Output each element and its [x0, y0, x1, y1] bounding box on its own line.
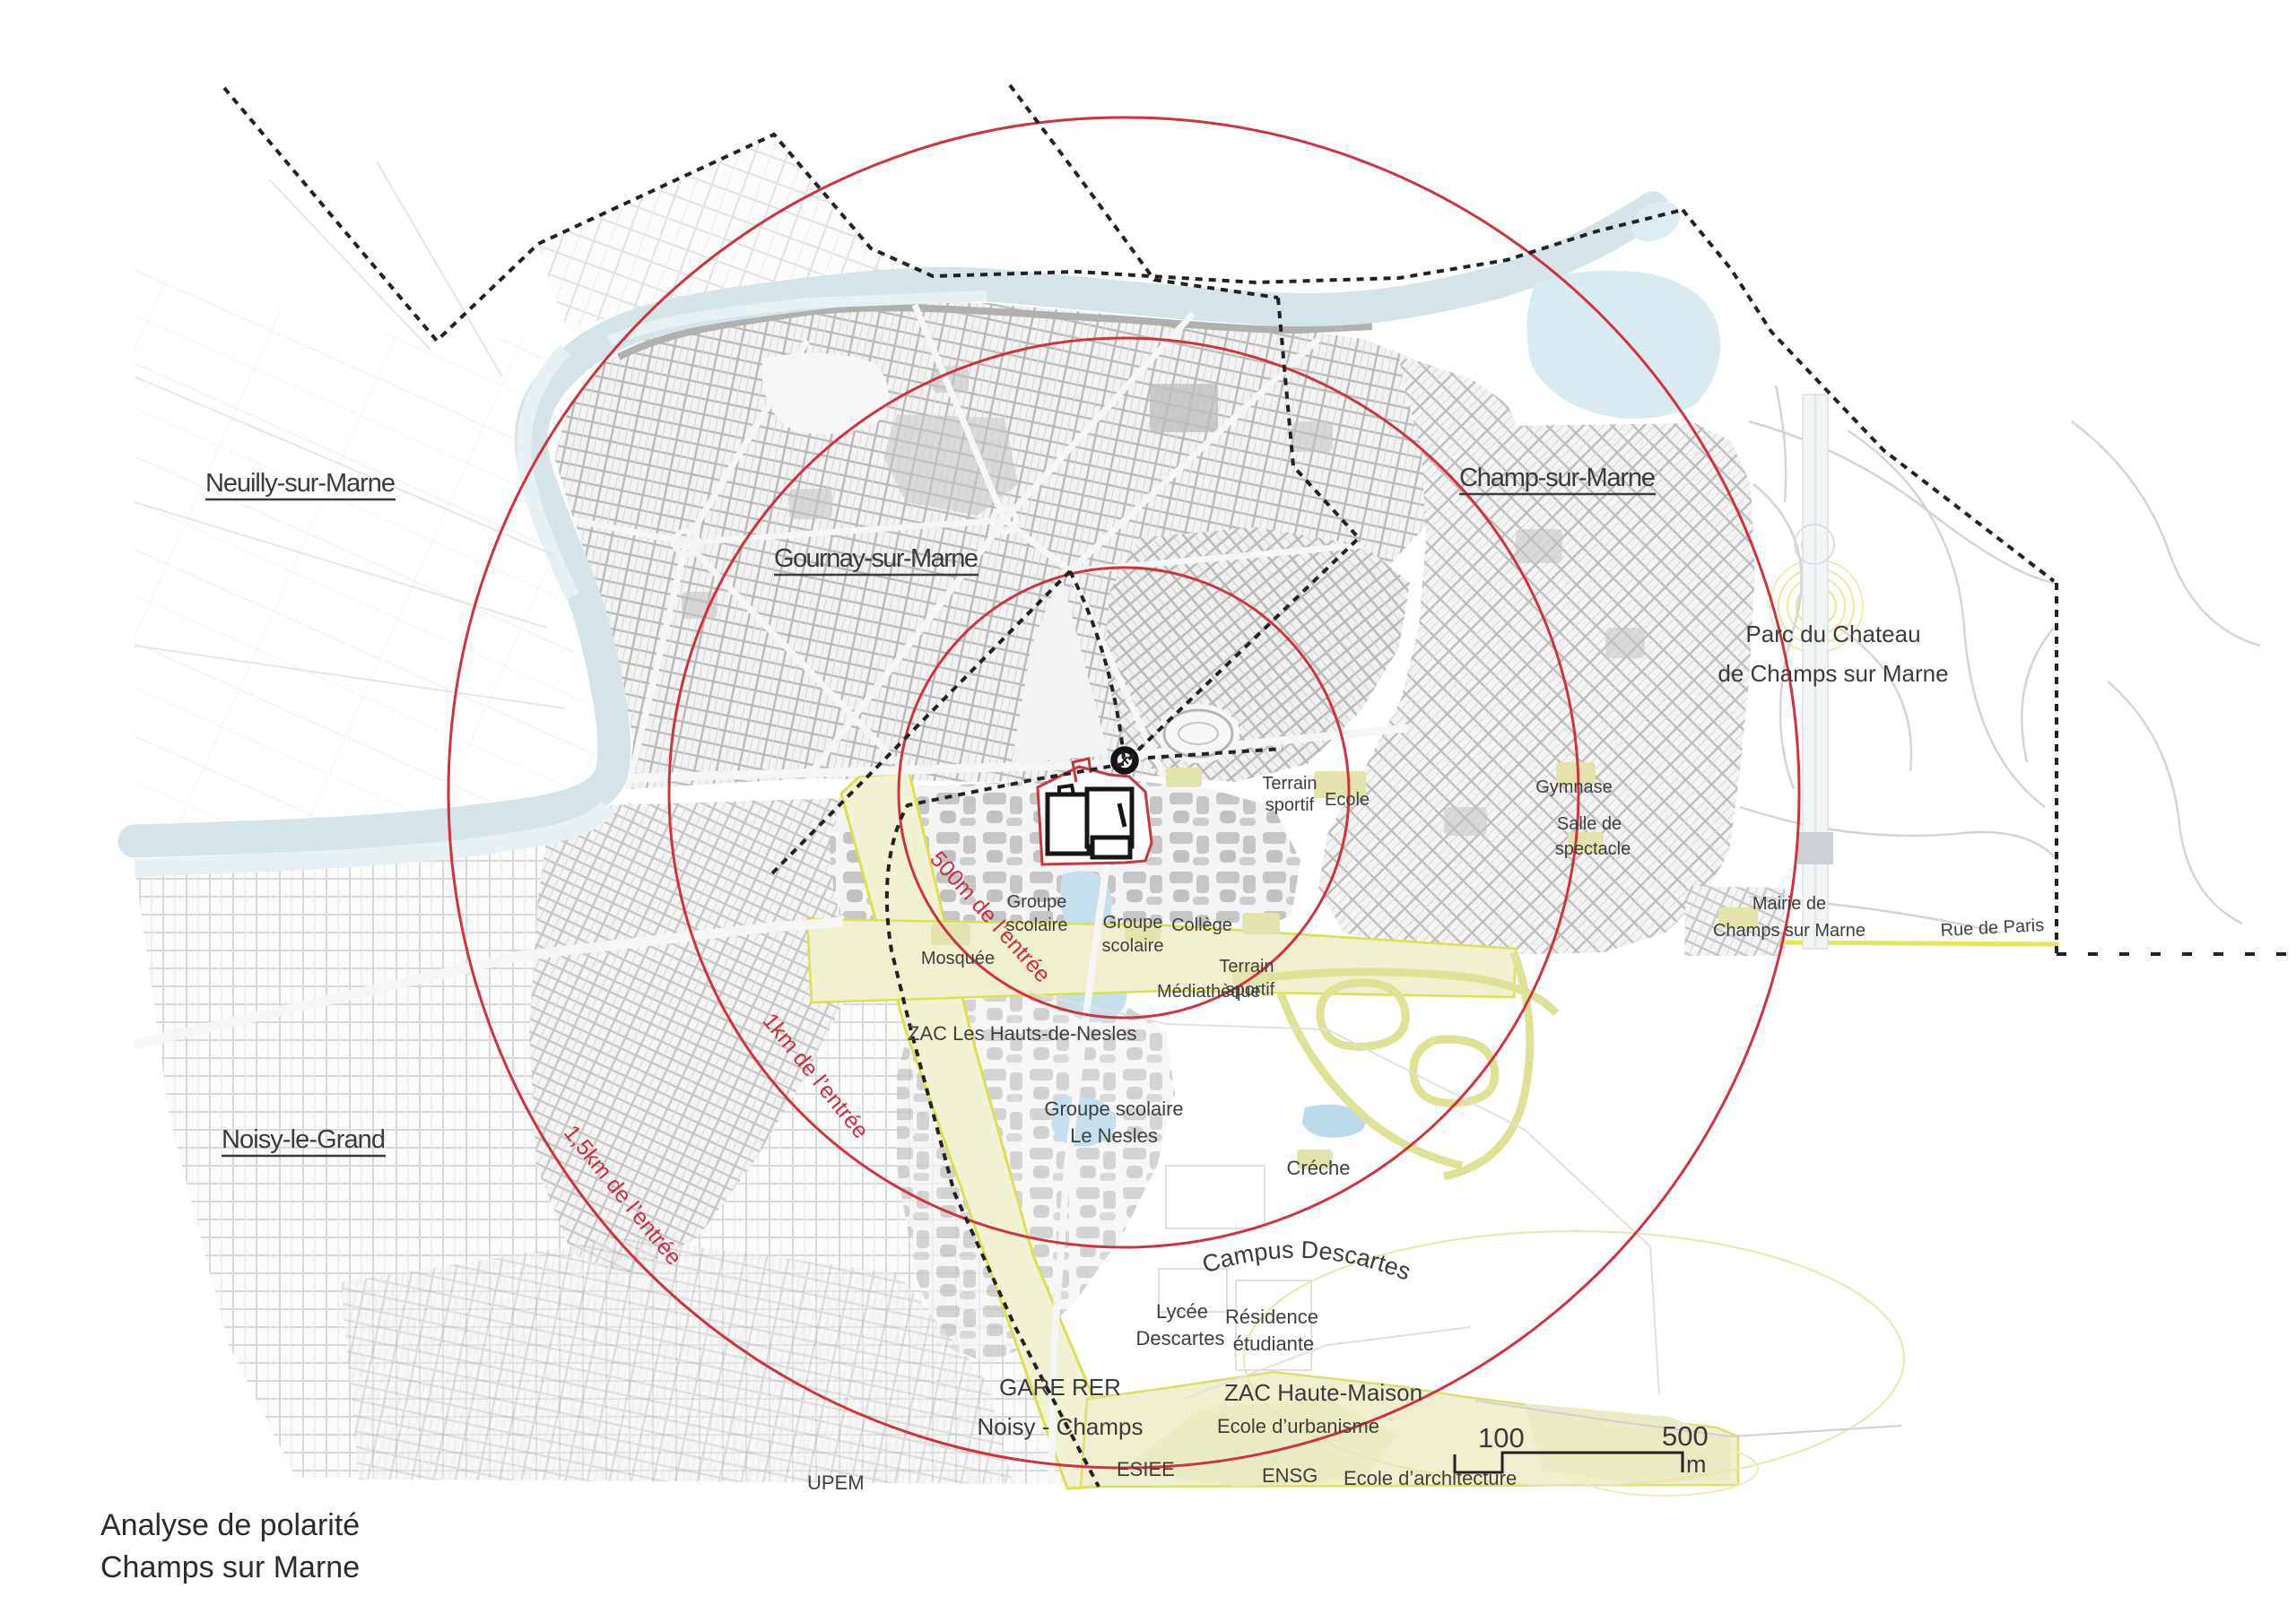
svg-text:Salle de: Salle de: [1557, 814, 1622, 834]
svg-text:Champs sur Marne: Champs sur Marne: [1713, 921, 1865, 941]
svg-text:Collège: Collège: [1171, 916, 1232, 935]
svg-text:sportif: sportif: [1265, 795, 1315, 815]
svg-text:Analyse de polarité: Analyse de polarité: [100, 1508, 360, 1542]
svg-text:GARE RER: GARE RER: [999, 1374, 1121, 1401]
svg-text:Noisy - Champs: Noisy - Champs: [978, 1413, 1144, 1440]
svg-text:spectacle: spectacle: [1555, 839, 1631, 859]
svg-text:Groupe scolaire: Groupe scolaire: [1044, 1098, 1183, 1120]
svg-text:Mosquée: Mosquée: [921, 949, 995, 968]
svg-text:étudiante: étudiante: [1233, 1332, 1315, 1355]
svg-text:Ecole d’architecture: Ecole d’architecture: [1344, 1467, 1517, 1489]
svg-text:Terrain: Terrain: [1219, 957, 1274, 976]
svg-text:ZAC Les Hauts-de-Nesles: ZAC Les Hauts-de-Nesles: [908, 1022, 1137, 1045]
svg-text:m: m: [1686, 1451, 1707, 1478]
svg-text:Noisy-le-Grand: Noisy-le-Grand: [222, 1125, 386, 1154]
svg-text:Descartes: Descartes: [1135, 1327, 1224, 1350]
svg-text:Ecole d’urbanisme: Ecole d’urbanisme: [1217, 1415, 1379, 1437]
svg-text:Groupe: Groupe: [1103, 913, 1163, 933]
svg-text:Parc du Chateau: Parc du Chateau: [1745, 621, 1920, 647]
svg-text:Neuilly-sur-Marne: Neuilly-sur-Marne: [205, 469, 396, 498]
svg-text:Le Nesles: Le Nesles: [1070, 1124, 1158, 1147]
svg-text:Ecole: Ecole: [1325, 790, 1370, 810]
svg-text:Mairie de: Mairie de: [1752, 894, 1826, 914]
svg-text:500: 500: [1662, 1420, 1709, 1452]
svg-text:Groupe: Groupe: [1007, 892, 1067, 912]
svg-text:Lycée: Lycée: [1156, 1300, 1208, 1323]
svg-text:Gymnase: Gymnase: [1535, 777, 1613, 797]
svg-text:Médiathèque: Médiathèque: [1157, 982, 1261, 1002]
svg-text:Résidence: Résidence: [1225, 1306, 1318, 1328]
svg-text:Champs sur Marne: Champs sur Marne: [100, 1550, 360, 1584]
svg-text:Gournay-sur-Marne: Gournay-sur-Marne: [774, 544, 978, 573]
svg-text:Créche: Créche: [1287, 1157, 1351, 1179]
svg-text:Terrain: Terrain: [1262, 774, 1317, 794]
svg-text:ESIEE: ESIEE: [1117, 1458, 1175, 1480]
svg-text:ENSG: ENSG: [1262, 1464, 1318, 1487]
svg-text:scolaire: scolaire: [1102, 936, 1164, 956]
svg-text:de Champs sur Marne: de Champs sur Marne: [1718, 660, 1948, 687]
svg-text:Champ-sur-Marne: Champ-sur-Marne: [1459, 464, 1656, 492]
svg-text:100: 100: [1478, 1422, 1525, 1454]
svg-text:UPEM: UPEM: [807, 1471, 865, 1494]
svg-text:ZAC Haute-Maison: ZAC Haute-Maison: [1224, 1379, 1422, 1406]
